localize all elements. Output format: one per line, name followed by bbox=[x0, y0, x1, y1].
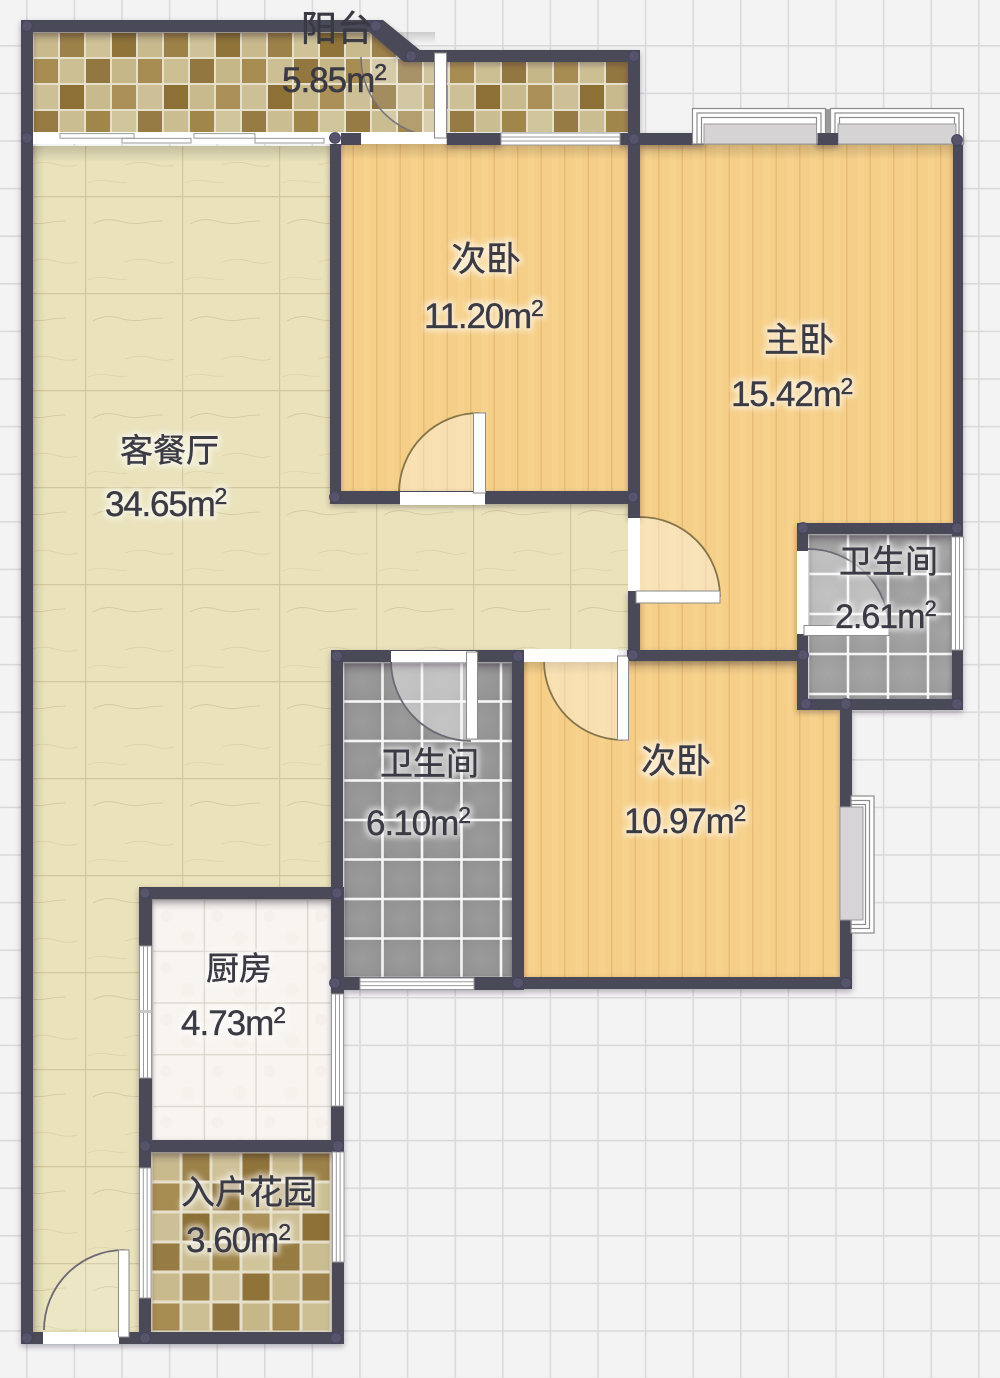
svg-text:5.85m2: 5.85m2 bbox=[282, 59, 386, 100]
svg-text:10.97m2: 10.97m2 bbox=[624, 800, 746, 841]
svg-text:3.60m2: 3.60m2 bbox=[186, 1219, 290, 1260]
svg-text:6.10m2: 6.10m2 bbox=[366, 802, 470, 843]
svg-text:11.20m2: 11.20m2 bbox=[424, 295, 543, 336]
svg-text:4.73m2: 4.73m2 bbox=[181, 1002, 285, 1043]
svg-text:34.65m2: 34.65m2 bbox=[105, 483, 227, 524]
svg-text:15.42m2: 15.42m2 bbox=[731, 373, 853, 414]
svg-text:2.61m2: 2.61m2 bbox=[835, 596, 937, 636]
